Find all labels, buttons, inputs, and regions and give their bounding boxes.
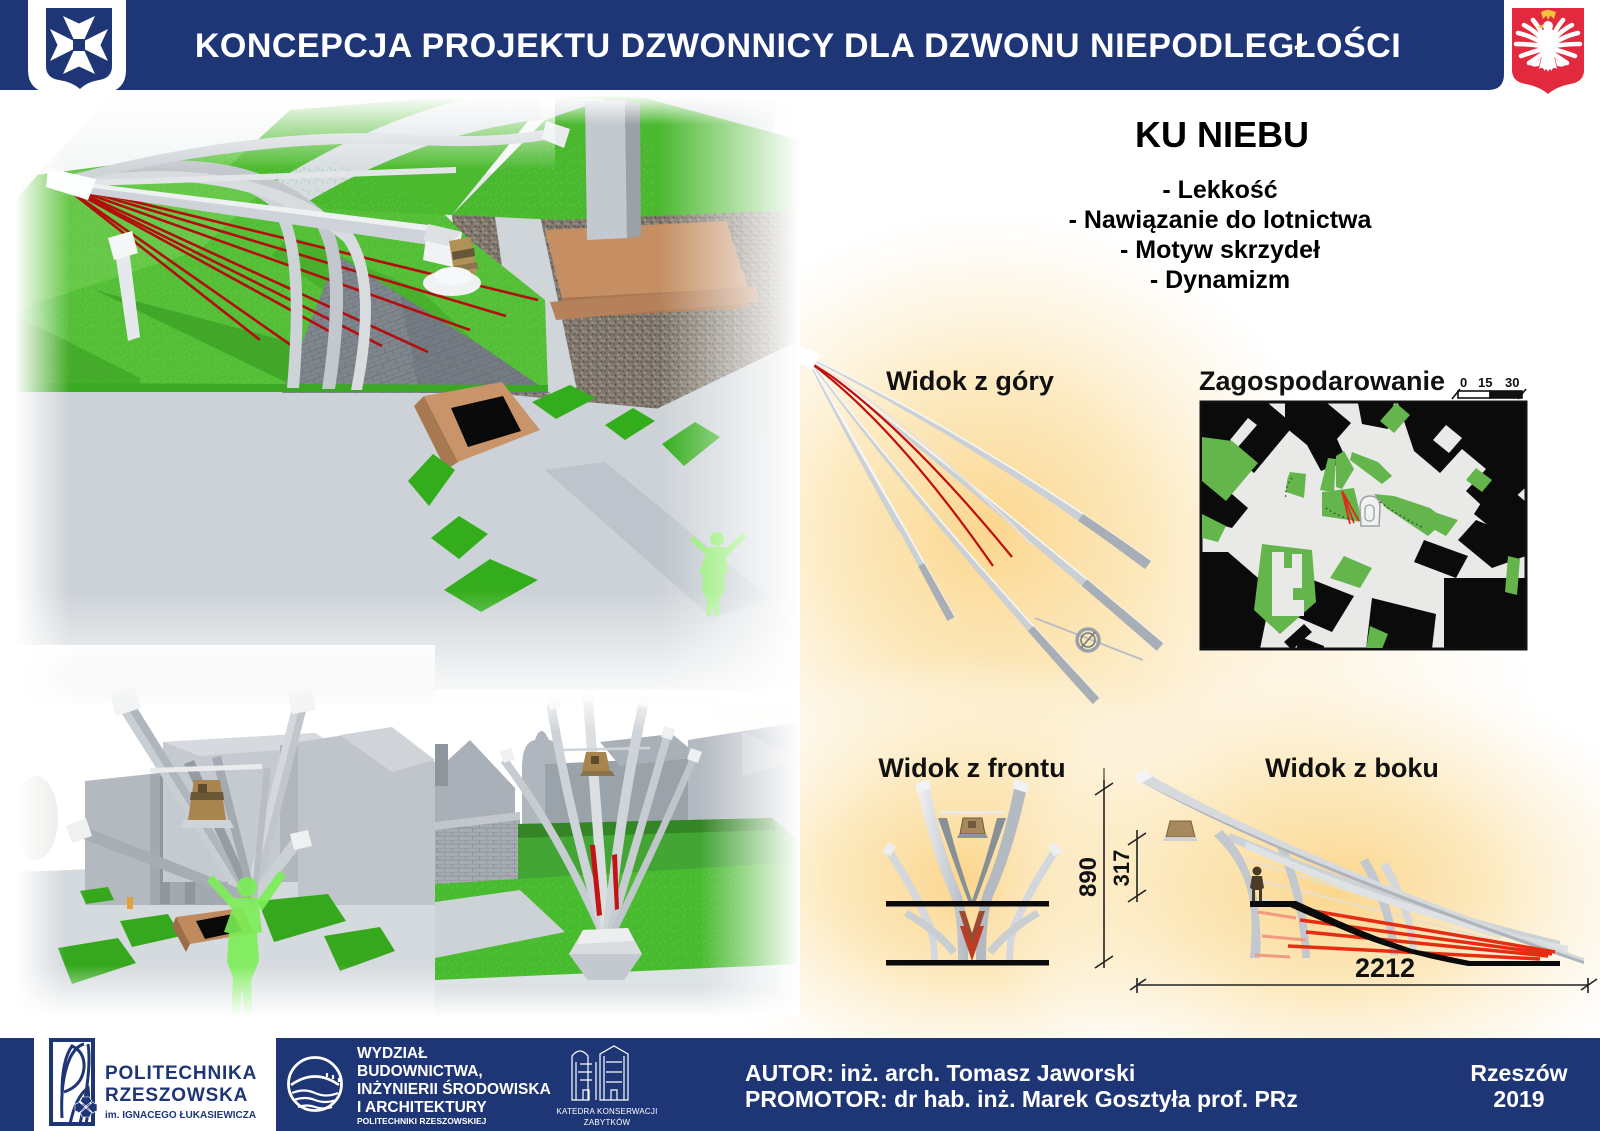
svg-text:890: 890 [1075, 857, 1102, 897]
svg-text:Widok z frontu: Widok z frontu [878, 753, 1065, 783]
svg-text:BUDOWNICTWA,: BUDOWNICTWA, [357, 1063, 483, 1080]
svg-text:KONCEPCJA PROJEKTU DZWONNICY D: KONCEPCJA PROJEKTU DZWONNICY DLA DZWONU … [195, 27, 1401, 65]
svg-text:ZABYTKÓW: ZABYTKÓW [584, 1118, 631, 1127]
svg-text:KU NIEBU: KU NIEBU [1135, 114, 1309, 155]
svg-text:RZESZOWSKA: RZESZOWSKA [105, 1085, 248, 1106]
svg-text:- Motyw skrzydeł: - Motyw skrzydeł [1120, 236, 1320, 264]
svg-text:Zagospodarowanie: Zagospodarowanie [1199, 366, 1445, 396]
svg-text:Widok z góry: Widok z góry [886, 366, 1054, 396]
svg-text:- Lekkość: - Lekkość [1162, 176, 1277, 204]
svg-text:KATEDRA KONSERWACJI: KATEDRA KONSERWACJI [556, 1107, 657, 1116]
svg-text:2019: 2019 [1493, 1086, 1544, 1112]
svg-text:30: 30 [1505, 375, 1519, 390]
svg-text:Widok z boku: Widok z boku [1265, 753, 1439, 783]
svg-text:I ARCHITEKTURY: I ARCHITEKTURY [357, 1099, 487, 1116]
svg-text:Rzeszów: Rzeszów [1470, 1060, 1567, 1086]
svg-text:POLITECHNIKI RZESZOWSKIEJ: POLITECHNIKI RZESZOWSKIEJ [357, 1116, 487, 1126]
svg-text:im. IGNACEGO ŁUKASIEWICZA: im. IGNACEGO ŁUKASIEWICZA [105, 1110, 256, 1121]
svg-text:AUTOR: inż. arch. Tomasz Jawor: AUTOR: inż. arch. Tomasz Jaworski [745, 1060, 1135, 1086]
svg-text:- Dynamizm: - Dynamizm [1150, 266, 1290, 294]
svg-text:- Nawiązanie do lotnictwa: - Nawiązanie do lotnictwa [1069, 206, 1373, 234]
svg-text:INŻYNIERII ŚRODOWISKA: INŻYNIERII ŚRODOWISKA [357, 1080, 551, 1098]
svg-text:2212: 2212 [1355, 953, 1415, 983]
svg-text:PROMOTOR: dr hab. inż. Marek: PROMOTOR: dr hab. inż. Marek Gosztyła pr… [745, 1086, 1298, 1112]
svg-text:WYDZIAŁ: WYDZIAŁ [357, 1045, 428, 1062]
svg-text:POLITECHNIKA: POLITECHNIKA [105, 1063, 257, 1084]
svg-text:0: 0 [1460, 375, 1467, 390]
svg-text:15: 15 [1478, 375, 1492, 390]
svg-text:317: 317 [1109, 850, 1134, 887]
